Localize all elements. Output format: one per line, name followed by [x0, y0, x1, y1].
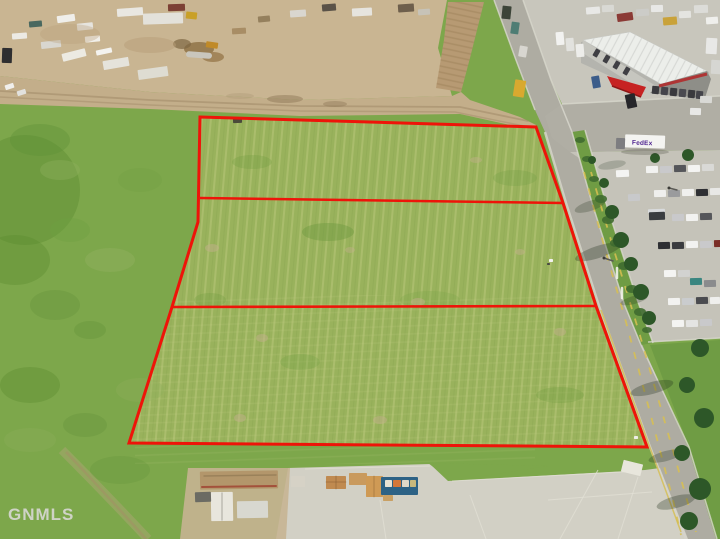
- yard_items-item: [186, 11, 198, 19]
- yard_items-item: [232, 28, 246, 35]
- building_trucks-item: [694, 5, 708, 13]
- parking_cars-item: [696, 189, 708, 196]
- dirt_marks-item: [226, 93, 254, 99]
- greenery-item: [679, 377, 695, 393]
- bottom_items-item: [195, 492, 211, 503]
- field_texture-item: [63, 413, 107, 437]
- greenery-item: [680, 512, 698, 530]
- field_texture-item: [232, 155, 272, 169]
- parking_cars-item: [678, 270, 690, 277]
- bottom_items-item: [202, 486, 276, 487]
- parking_cars-item: [702, 164, 714, 171]
- field_texture-item: [116, 378, 164, 402]
- street_vehicles-item: [616, 138, 625, 149]
- parking_cars-item: [682, 298, 694, 305]
- road_furniture-item: [668, 187, 671, 190]
- parcel-divider-2: [172, 306, 596, 307]
- bottom_items-item: [366, 476, 383, 497]
- building_trucks-item: [679, 11, 691, 19]
- parking_cars-item: [646, 166, 658, 173]
- greenery-item: [599, 178, 609, 188]
- building_bays-item: [688, 90, 696, 99]
- field_texture-item: [302, 223, 354, 241]
- dirt_spots-item: [515, 249, 525, 255]
- field_texture-item: [280, 354, 320, 370]
- greenery-item: [588, 156, 596, 164]
- field_texture-item: [40, 160, 80, 180]
- parking_cars-item: [654, 190, 666, 197]
- building_bays-item: [652, 86, 660, 95]
- road_furniture-item: [603, 257, 606, 260]
- field_texture-item: [90, 456, 150, 484]
- bottom_items-item: [393, 480, 401, 487]
- bottom_items-item: [410, 480, 416, 487]
- yard_items-item: [29, 20, 42, 27]
- greenery-item: [682, 149, 694, 161]
- greenery-item: [691, 339, 709, 357]
- field_texture-item: [536, 387, 584, 403]
- parking_cars-item: [686, 320, 698, 327]
- bottom_items-item: [385, 480, 392, 487]
- field_texture-item: [0, 367, 60, 403]
- building_bays-item: [679, 89, 687, 98]
- mow-stripes-horizontal: [125, 295, 660, 450]
- parking_cars-item: [674, 165, 686, 172]
- parking_cars-item: [700, 213, 712, 220]
- building_trucks-item: [555, 32, 564, 46]
- dirt_spots-item: [470, 157, 482, 163]
- field_texture-item: [10, 124, 70, 156]
- field_texture-item: [74, 321, 106, 339]
- dirt_spots-item: [205, 244, 219, 252]
- parking_cars-item: [710, 188, 720, 195]
- yard_items-item: [418, 9, 430, 16]
- parking_cars-item: [686, 241, 698, 248]
- dirt_spots-item: [234, 414, 246, 422]
- dirt_spots-item: [634, 436, 638, 439]
- field_texture-item: [194, 293, 226, 307]
- yard_items-item: [352, 7, 372, 16]
- greenery-item: [694, 408, 714, 428]
- parking_cars-item: [616, 170, 629, 178]
- bottom_items-item: [204, 475, 276, 476]
- street_vehicles-item: [621, 149, 669, 155]
- building_trucks-item: [690, 108, 701, 115]
- greenery-item: [575, 137, 585, 143]
- parking_cars-item: [672, 320, 684, 327]
- building_trucks-item: [602, 5, 614, 13]
- parking_cars-item: [696, 297, 708, 304]
- yard_items-item: [322, 3, 337, 11]
- parking_cars-item: [649, 212, 665, 221]
- yard_items-item: [168, 4, 185, 12]
- building_bays-item: [661, 87, 669, 96]
- parking_cars-item: [668, 190, 680, 197]
- parking_cars-item: [682, 189, 694, 196]
- parking_cars-item: [688, 165, 700, 172]
- top_road_vehicles-item: [501, 6, 511, 20]
- parking_cars-item: [700, 319, 712, 326]
- aerial-photo: FedEx GNMLS: [0, 0, 720, 539]
- bottom_items-item: [383, 495, 393, 501]
- building_trucks-item: [663, 16, 678, 25]
- parking_cars-item: [686, 214, 698, 221]
- field_texture-item: [118, 168, 162, 192]
- building_trucks-item: [565, 38, 574, 52]
- bottom_items-item: [291, 476, 305, 487]
- dirt_spots-item: [373, 416, 387, 424]
- dirt_spots-item: [549, 259, 553, 262]
- parking_cars-item: [672, 242, 684, 249]
- yard_items-item: [290, 9, 306, 17]
- dirt_spots-item: [547, 263, 550, 265]
- yard_items-item: [2, 48, 13, 63]
- aerial-scene: FedEx GNMLS: [0, 0, 720, 539]
- greenery-item: [674, 445, 690, 461]
- parking_cars-item: [660, 166, 672, 173]
- yard_items-item: [398, 3, 415, 12]
- building_trucks-item: [700, 96, 712, 103]
- dirt_marks-item: [323, 101, 347, 107]
- parking_cars-item: [672, 214, 684, 221]
- field_texture-item: [30, 290, 80, 320]
- parking_cars-item: [664, 270, 676, 277]
- parking_cars-item: [714, 240, 720, 247]
- top_road_vehicles-item: [510, 22, 520, 35]
- greenery-item: [642, 327, 652, 333]
- greenery-item: [642, 311, 656, 325]
- building_trucks-item: [636, 9, 649, 17]
- yard_items-item: [12, 32, 27, 39]
- parking_cars-item: [668, 298, 680, 305]
- parking_cars-item: [710, 297, 720, 304]
- parking_cars-item: [704, 280, 716, 287]
- field_texture-item: [493, 170, 537, 186]
- yard_items-item: [143, 12, 183, 24]
- building_trucks-item: [711, 60, 720, 75]
- greenery-item: [613, 232, 629, 248]
- field_texture-item: [4, 428, 56, 452]
- greenery-item: [595, 195, 607, 203]
- parking_cars-item: [658, 242, 670, 249]
- mls-watermark: GNMLS: [8, 505, 74, 524]
- dirt_marks-item: [267, 95, 303, 103]
- dirt_spots-item: [554, 328, 566, 336]
- fedex-logo-text: FedEx: [632, 140, 653, 148]
- building_trucks-item: [651, 5, 663, 12]
- yard_items-item: [124, 37, 176, 53]
- yard_items-item: [258, 15, 271, 22]
- bottom_items-item: [237, 501, 268, 519]
- yard_items-item: [40, 24, 100, 44]
- building_trucks-item: [575, 44, 584, 58]
- mow-stripes-bottom-strip: [135, 446, 535, 464]
- parking_cars-item: [628, 194, 640, 202]
- greenery-item: [605, 205, 619, 219]
- greenery-item: [589, 176, 599, 182]
- parking_cars-item: [690, 278, 702, 285]
- greenery-item: [689, 478, 711, 500]
- building_trucks-item: [586, 6, 601, 14]
- greenery-item: [624, 257, 638, 271]
- dirt_spots-item: [256, 334, 268, 342]
- building_trucks-item: [706, 38, 718, 55]
- building_trucks-item: [706, 17, 718, 25]
- dirt_spots-item: [345, 247, 355, 253]
- field_texture-item: [85, 248, 135, 272]
- field_texture-item: [50, 218, 90, 242]
- dirt_spots-item: [411, 298, 425, 306]
- bottom_items-item: [349, 473, 367, 485]
- bottom_items-item: [402, 480, 409, 487]
- building_bays-item: [670, 88, 678, 97]
- greenery-item: [633, 284, 649, 300]
- parking_cars-item: [700, 241, 712, 248]
